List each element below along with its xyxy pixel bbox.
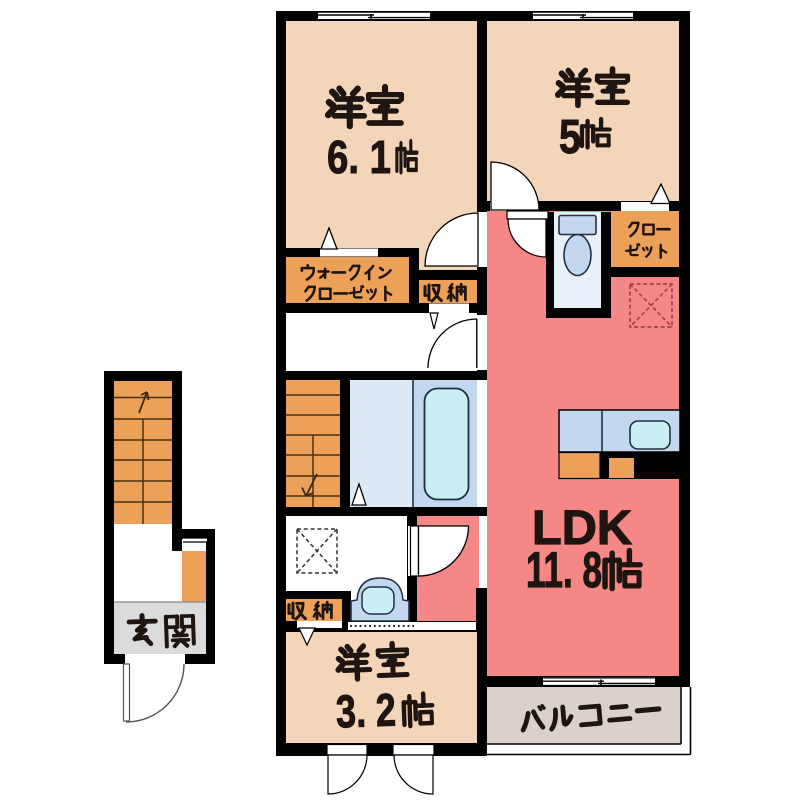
svg-text:3. 2: 3. 2 (335, 683, 397, 737)
svg-text:5: 5 (559, 111, 581, 164)
svg-text:6. 1: 6. 1 (327, 131, 391, 183)
svg-text:11. 8: 11. 8 (526, 542, 602, 598)
